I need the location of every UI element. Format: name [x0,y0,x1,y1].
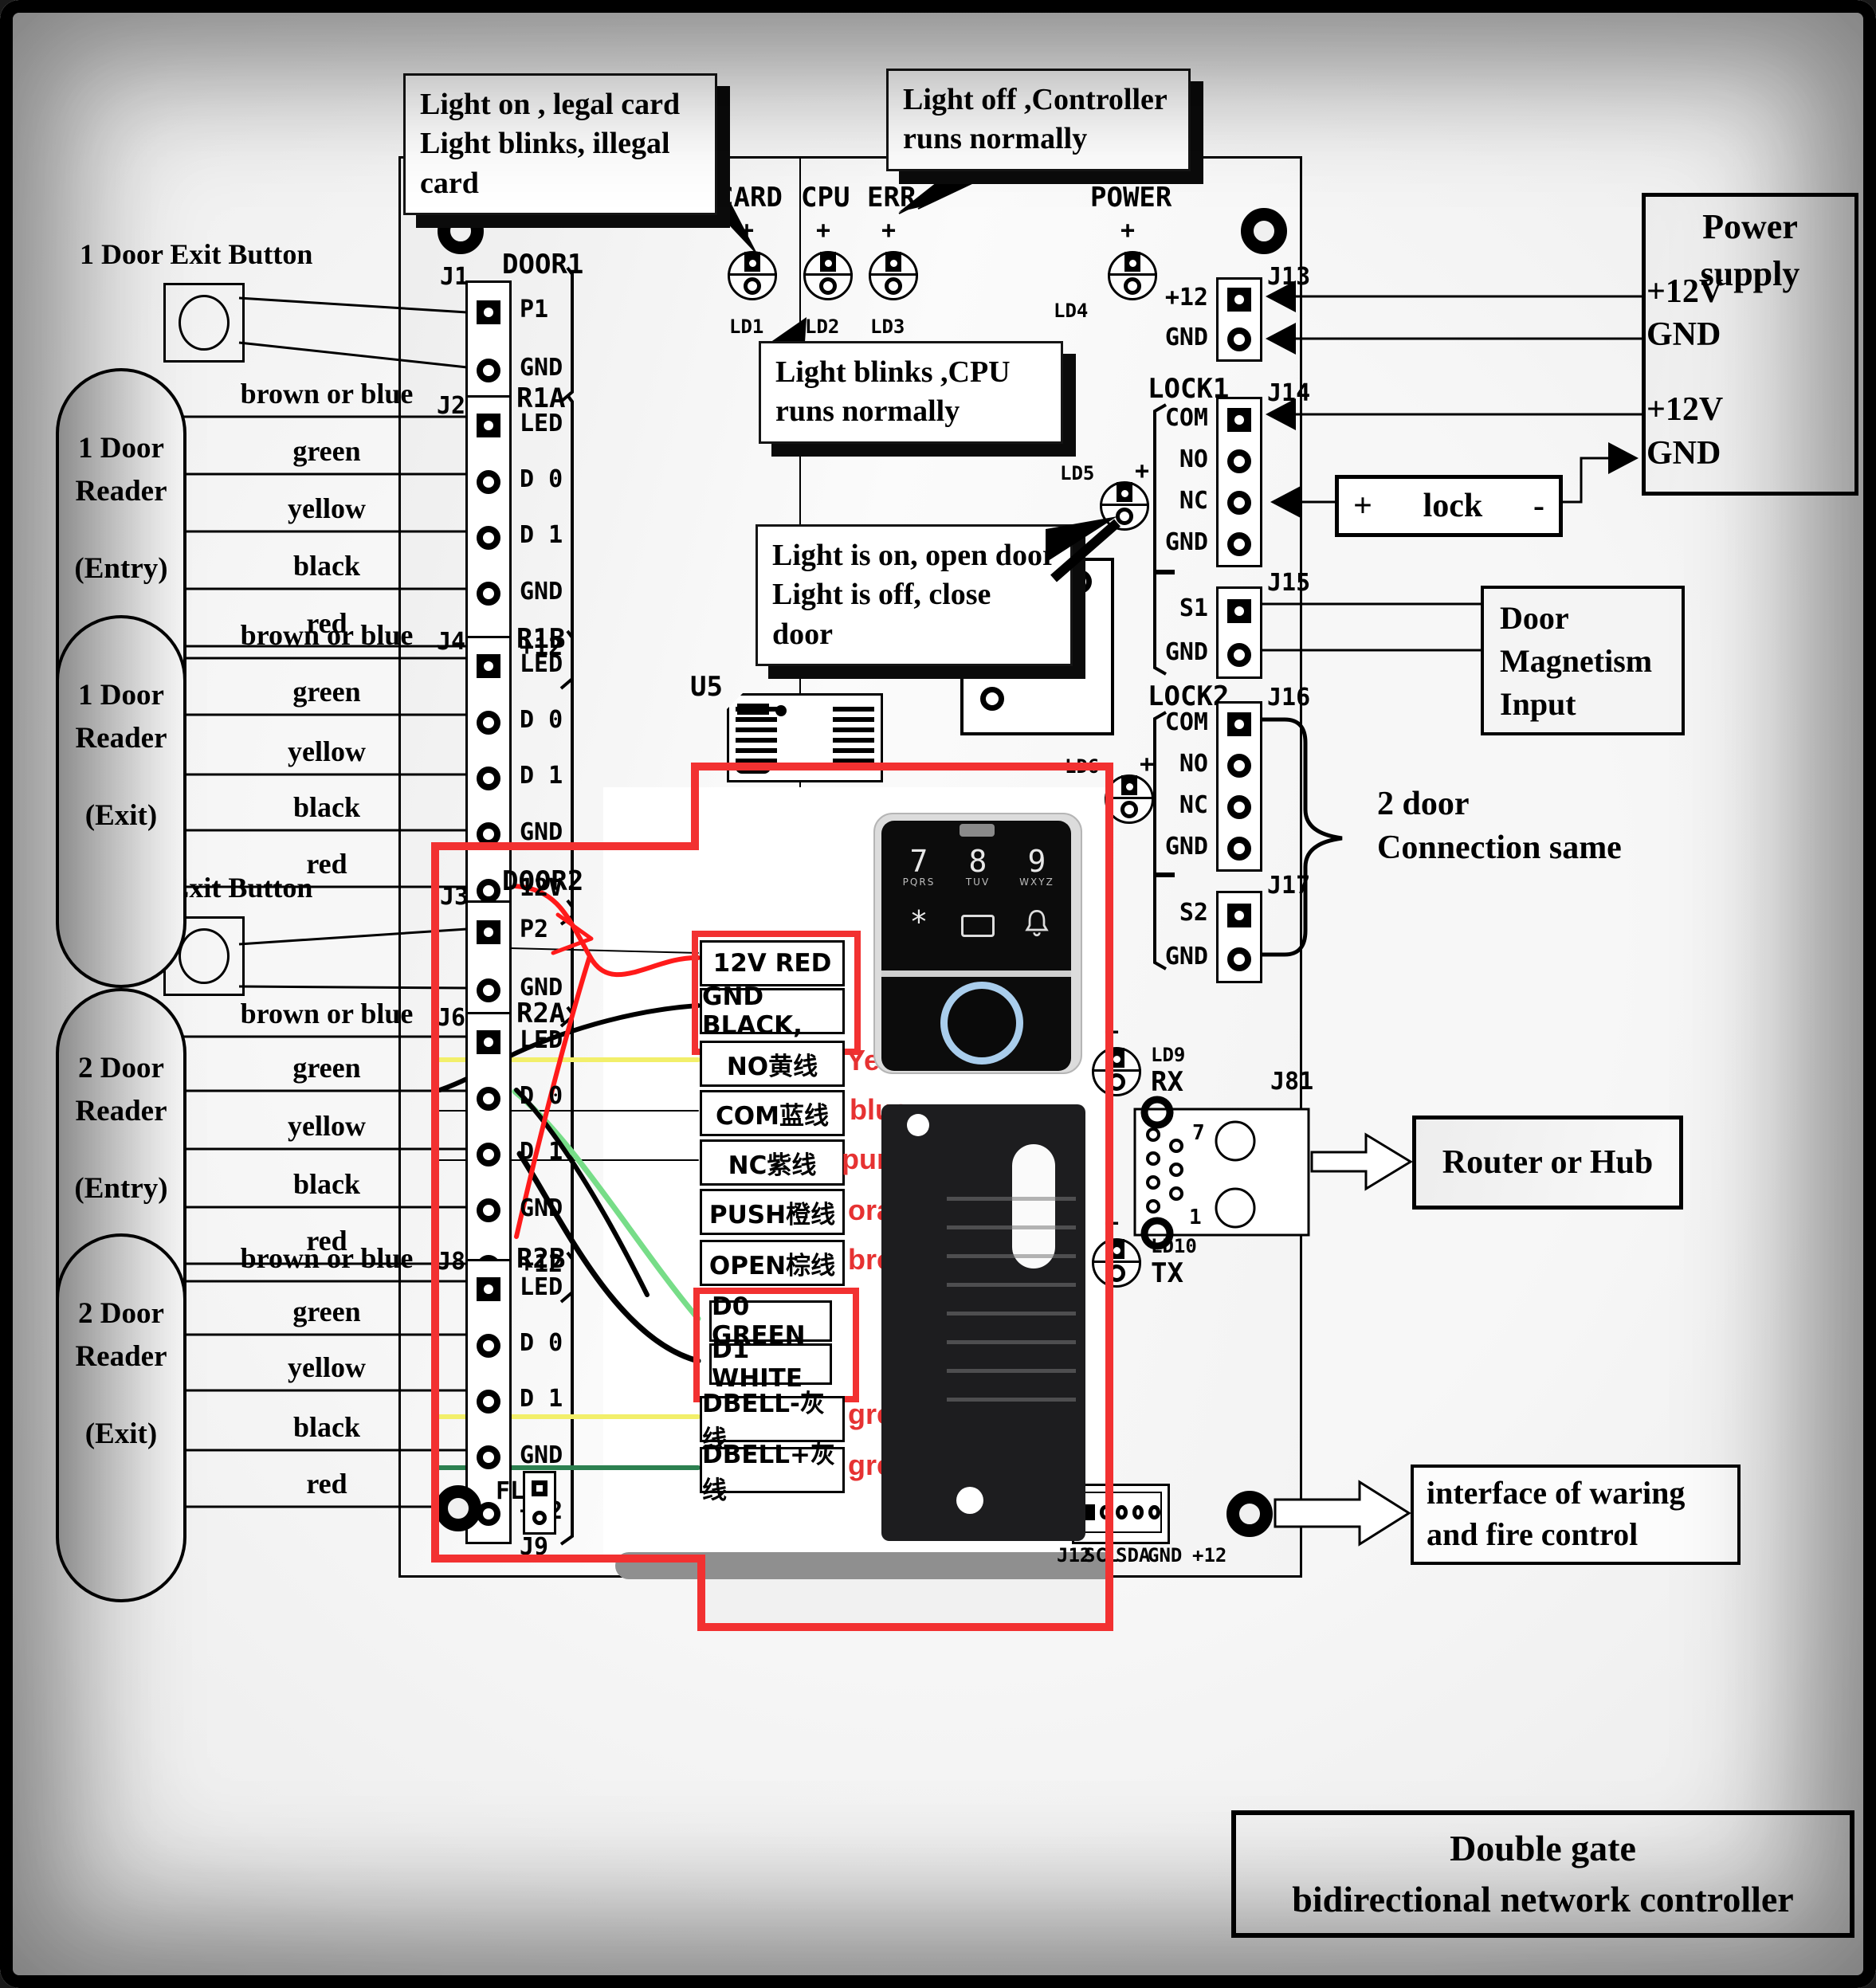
pin [1227,947,1251,971]
key-7: 7PQRS [889,846,948,888]
power-rail-label: GND [1646,434,1721,472]
pin-label: S1 [1179,594,1208,622]
card-led-callout: Light on , legal cardLight blinks, illeg… [403,73,717,215]
pin-label: P1 [520,296,548,323]
key-star: * [889,907,948,937]
j15-pin-labels: S1GND [1141,586,1208,674]
door1-label: DOOR1 [502,249,583,280]
j1-pin-labels: P1GND [520,280,563,397]
pin [477,822,500,846]
wire-row: 12V RED [700,940,845,986]
two-door-note: 2 door [1377,785,1470,823]
power-rail-label: +12V [1646,390,1723,429]
j9-ref: J9 [520,1533,548,1561]
j8-ref: J8 [437,1248,465,1276]
pin [1227,327,1251,351]
pin-label: GND [520,1441,563,1469]
j12-pin-label: SCL [1084,1544,1118,1566]
pin [477,470,500,494]
exit-button-1-label: 1 Door Exit Button [80,237,312,271]
power-supply-title: Power [1646,203,1854,250]
card-led-icon [728,251,777,300]
tx-led-icon [1092,1238,1141,1288]
pin [1227,491,1251,515]
pin [477,1143,500,1167]
key-9: 9WXYZ [1007,846,1066,888]
reader-line: 2 Door [78,1292,164,1335]
j81-ref: J81 [1270,1068,1313,1096]
mounting-hole [435,1485,481,1531]
pin [1085,1504,1095,1520]
door-magnetism-line: Input [1500,683,1682,726]
cpu-led-callout: Light blinks ,CPUruns normally [759,341,1063,444]
j6-header [465,1012,512,1297]
reader-line: Reader [75,717,167,760]
reader-line: 2 Door [78,1047,164,1090]
j2-ref: J2 [437,392,465,420]
j14-ref: J14 [1267,379,1310,407]
ld4-ref: LD4 [1054,300,1088,322]
plus-mark: + [881,217,896,245]
lock-plus: + [1353,487,1372,525]
wire-color: black [191,790,462,824]
pin [532,1480,547,1496]
fire-interface-box: interface of waring and fire control [1411,1465,1741,1565]
screw-hole [956,1487,983,1514]
relay-pad [980,687,1004,711]
reader-line: 1 Door [78,674,164,717]
pin [1132,1505,1144,1519]
arrow-to-fire-interface [1275,1482,1409,1544]
pin-label: D 0 [520,706,563,734]
wire-color: yellow [191,1351,462,1384]
title-box: Double gate bidirectional network contro… [1231,1810,1854,1938]
fire-interface-line: interface of waring [1427,1472,1737,1514]
wire-color: green [191,1051,462,1084]
pin [1116,1505,1128,1519]
reader-line: (Exit) [85,1413,157,1456]
pin [477,978,500,1002]
wire-row: OPEN棕线 [700,1240,845,1286]
wire-row: DBELL+灰线 [700,1447,845,1493]
wire-color: red [191,847,462,880]
ld3-ref: LD3 [870,316,905,338]
pin [477,1445,500,1469]
rx-led-icon [1092,1047,1141,1096]
pin-label: GND [1165,323,1208,351]
wire-color: black [191,1167,462,1201]
rx-label: RX [1151,1066,1183,1098]
pin [1227,754,1251,778]
err-led-icon [869,251,918,300]
j13-ref: J13 [1267,263,1310,291]
title-line: bidirectional network controller [1292,1874,1793,1925]
plus-mark: + [1120,217,1135,245]
power-led-label: POWER [1090,182,1172,214]
reader-line: (Entry) [74,1167,167,1210]
j4-ref: J4 [437,628,465,656]
err-led-label: ERR [867,182,916,214]
pin-label: GND [520,818,563,846]
pin-label: +12 [1165,284,1208,312]
fire-interface-line: and fire control [1427,1514,1737,1555]
pin [1227,904,1251,927]
j17-pin-labels: S2GND [1141,891,1208,978]
j1-ref: J1 [440,263,469,291]
pin [1148,1505,1160,1519]
pin [532,1511,547,1525]
j16-ref: J16 [1267,684,1310,712]
j14-pin-labels: COMNONCGND [1141,397,1208,563]
wire-color: yellow [191,735,462,768]
plus-mark: + [816,217,830,245]
ld1-ref: LD1 [729,316,763,338]
wire-row: PUSH橙线 [700,1189,845,1235]
pin [477,879,500,903]
lock-led-callout: Light is on, open doorLight is off, clos… [756,524,1073,666]
pin [1227,288,1251,312]
reader-line: Reader [75,1090,167,1133]
reader-line: 1 Door [78,427,164,470]
pin-label: GND [1165,833,1208,861]
pin-label: D 0 [520,465,563,493]
u5-chip [727,693,883,782]
mounting-hole [1241,208,1287,254]
pin [477,300,500,324]
j3-ref: J3 [440,883,469,911]
pin-label: D 0 [520,1082,563,1110]
lock-label: lock [1423,487,1483,525]
fingerprint-sensor-icon [940,982,1023,1065]
plus-mark: + [1105,1018,1119,1046]
router-label: Router or Hub [1442,1143,1653,1182]
ld6-ref: LD6 [1065,755,1099,778]
pin [477,582,500,606]
pin [477,414,500,437]
cpu-led-label: CPU [801,182,850,214]
arrow-to-router [1312,1135,1411,1189]
j17-header [1216,891,1262,983]
pin [1227,643,1251,667]
fl-label: FL [496,1477,524,1505]
door-magnetism-line: Magnetism [1500,640,1682,683]
pin-label: P2 [520,916,548,943]
pin-label: LED [520,1273,563,1301]
screw-hole [907,1114,929,1136]
wire-row: NC紫线 [700,1139,845,1186]
pin [1227,837,1251,861]
pin-label: D 1 [520,762,563,790]
router-box: Router or Hub [1412,1116,1683,1210]
pin-label: S2 [1179,899,1208,927]
plus-mark: + [1105,1210,1119,1237]
pin-label: GND [1165,638,1208,666]
pin-label: GND [1165,528,1208,556]
wire-row: NO黄线 [700,1041,845,1087]
j15-ref: J15 [1267,569,1310,597]
power-rail-label: +12V [1646,273,1723,311]
pin [477,920,500,944]
pin [477,1390,500,1414]
pin [1227,712,1251,736]
j6-ref: J6 [437,1004,465,1032]
j16-header [1216,701,1262,872]
pin [1100,1505,1112,1519]
key-8: 8TUV [948,846,1007,888]
j1-header [465,280,512,402]
ld5-ref: LD5 [1060,462,1094,484]
wire-row: GND BLACK, [700,988,845,1034]
pin [477,654,500,678]
pin-label: COM [1165,404,1208,432]
wire-row: D1 WHITE [709,1343,832,1385]
pin-label: D 1 [520,1385,563,1413]
j13-pin-labels: +12GND [1141,277,1208,357]
wire-color: green [191,675,462,708]
u5-ref: U5 [690,671,723,703]
reader-line: (Exit) [85,794,157,837]
j9-jumper [523,1471,556,1535]
j81-rj45-jack: 7 1 [1135,1100,1309,1246]
pin-label: LED [520,410,563,437]
pin [1227,449,1251,473]
wire-row: COM蓝线 [700,1090,845,1136]
wire-color: green [191,434,462,468]
reader-1-exit: 1 Door Reader (Exit) [56,615,186,988]
pin-label: GND [520,1194,563,1222]
wire-color: black [191,549,462,582]
button-circle-icon [179,295,230,351]
pin [477,526,500,550]
j15-header [1216,586,1262,679]
pin-label: GND [520,354,563,382]
pin-label: NO [1179,750,1208,778]
j12-connector [1072,1484,1170,1544]
wire-color: brown or blue [191,997,462,1030]
pin-label: NO [1179,445,1208,473]
keypad-logo [960,824,995,837]
wiring-diagram: 7 1 1 Door Exit Button 2 Door Exit Butto… [0,0,1876,1988]
pin-label: D 1 [520,1138,563,1166]
power-rail-label: GND [1646,316,1721,354]
j81-pin7-label: 7 [1192,1121,1205,1145]
wire-color: yellow [191,492,462,525]
pin [477,1277,500,1301]
title-line: Double gate [1450,1823,1636,1874]
pin [1227,795,1251,819]
key-0 [948,915,1007,940]
pin [1227,599,1251,623]
j16-pin-labels: COMNONCGND [1141,701,1208,867]
ld9-ref: LD9 [1151,1044,1185,1066]
pin [1227,408,1251,432]
pin [477,767,500,790]
j12-pin-label: GND [1148,1544,1182,1566]
reader-line: (Entry) [74,547,167,590]
two-door-note: Connection same [1377,829,1622,867]
pin [1227,532,1251,556]
j17-ref: J17 [1267,872,1310,900]
tx-label: TX [1151,1257,1183,1289]
j3-header [465,900,512,1021]
wire-color: green [191,1295,462,1328]
keypad-divider [881,970,1071,977]
j12-pin-label: +12 [1192,1544,1226,1566]
pin [477,1334,500,1358]
door-magnetism-line: Door [1500,597,1682,640]
pin-label: COM [1165,708,1208,736]
two-door-brace [1262,720,1342,955]
pin-label: NC [1179,791,1208,819]
cpu-led-icon [803,251,853,300]
backplate-label [947,1197,1076,1404]
lock-box: + lock - [1335,475,1563,537]
lock-minus: - [1533,487,1544,525]
wire-color: brown or blue [191,377,462,410]
card-led-label: CARD [717,182,783,214]
reader-2-exit: 2 Door Reader (Exit) [56,1233,186,1602]
j14-header [1216,397,1262,567]
door-magnetism-box: Door Magnetism Input [1481,586,1685,735]
pin [477,359,500,382]
doorbell-key-icon [1007,908,1066,940]
wire-color: brown or blue [191,618,462,652]
pin-label: D 0 [520,1329,563,1357]
reader-line: Reader [75,470,167,513]
pin-label: LED [520,650,563,678]
pin-label: GND [1165,943,1208,970]
pin [477,1198,500,1222]
wire-color: brown or blue [191,1241,462,1275]
err-led-callout: Light off ,Controllerruns normally [886,69,1191,171]
exit-button-1 [163,283,245,363]
pin-label: NC [1179,487,1208,515]
j81-pin1-label: 1 [1189,1206,1202,1229]
door2-label: DOOR2 [502,865,583,897]
pin [477,711,500,735]
mounting-hole [1226,1491,1273,1537]
pin-label: LED [520,1026,563,1054]
pin-label: GND [520,578,563,606]
ld2-ref: LD2 [805,316,839,338]
wire-color: black [191,1410,462,1444]
button-circle-icon [179,928,230,984]
pin [477,1030,500,1054]
pin-label: D 1 [520,521,563,549]
j13-header [1216,277,1262,362]
reader-line: Reader [75,1335,167,1378]
ld10-ref: LD10 [1151,1235,1197,1257]
wire-color: red [191,1467,462,1500]
wire-color: yellow [191,1109,462,1143]
pin [477,1087,500,1111]
plus-mark: + [740,217,754,245]
j12-pin-label: SDA [1116,1544,1150,1566]
